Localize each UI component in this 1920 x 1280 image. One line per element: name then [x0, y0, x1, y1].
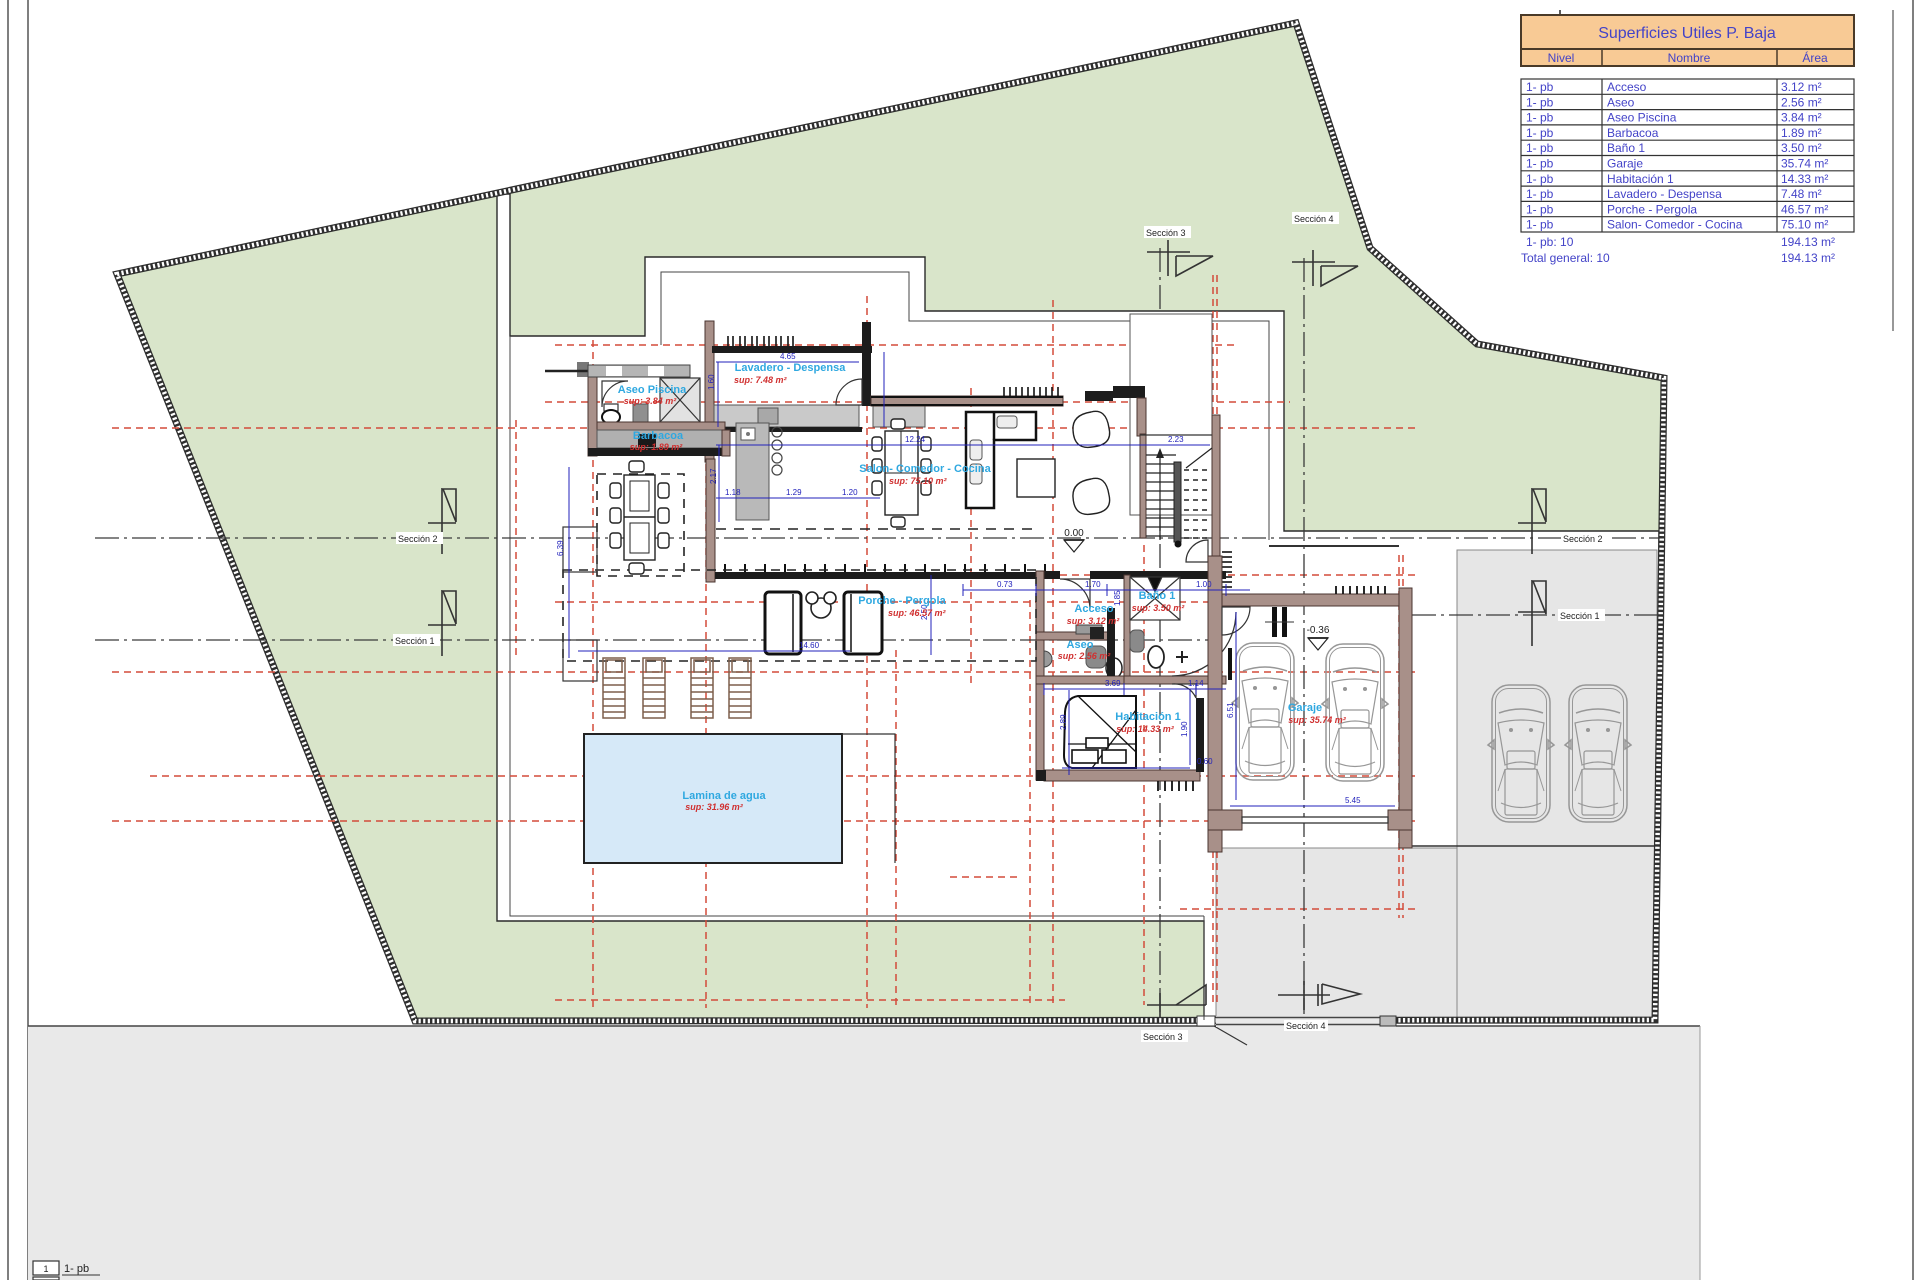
svg-text:Habitación 1: Habitación 1 — [1607, 172, 1674, 186]
svg-text:1.14: 1.14 — [1188, 679, 1204, 688]
svg-text:sup: 3.84 m²: sup: 3.84 m² — [624, 396, 678, 406]
svg-text:Superficies Utiles P. Baja: Superficies Utiles P. Baja — [1598, 25, 1776, 42]
svg-text:14.33 m²: 14.33 m² — [1781, 172, 1828, 186]
svg-text:sup: 3.50 m²: sup: 3.50 m² — [1132, 603, 1186, 613]
svg-text:Porche - Pergola: Porche - Pergola — [858, 595, 946, 607]
svg-text:7.48 m²: 7.48 m² — [1781, 187, 1822, 201]
svg-text:Aseo Piscina: Aseo Piscina — [1607, 111, 1677, 125]
svg-text:1.90: 1.90 — [1180, 721, 1189, 737]
svg-text:-0.36: -0.36 — [1307, 625, 1330, 636]
svg-text:0.73: 0.73 — [997, 580, 1013, 589]
svg-text:Sección 3: Sección 3 — [1146, 228, 1186, 238]
svg-text:sup: 46.57 m²: sup: 46.57 m² — [888, 608, 947, 618]
svg-text:sup: 3.12 m²: sup: 3.12 m² — [1067, 616, 1121, 626]
svg-text:Acceso: Acceso — [1074, 603, 1113, 615]
svg-text:sup: 7.48 m²: sup: 7.48 m² — [734, 375, 788, 385]
svg-text:Sección 1: Sección 1 — [395, 636, 435, 646]
svg-text:1- pb: 1- pb — [1526, 126, 1554, 140]
svg-text:Salon- Comedor - Cocina: Salon- Comedor - Cocina — [1607, 218, 1743, 232]
svg-text:Aseo: Aseo — [1067, 639, 1094, 651]
svg-text:sup: 35.74 m²: sup: 35.74 m² — [1288, 715, 1347, 725]
svg-text:35.74 m²: 35.74 m² — [1781, 157, 1828, 171]
svg-text:Sección 3: Sección 3 — [1143, 1032, 1183, 1042]
svg-text:3.12 m²: 3.12 m² — [1781, 80, 1822, 94]
svg-text:Sección 2: Sección 2 — [1563, 534, 1603, 544]
svg-text:Salon- Comedor - Cocina: Salon- Comedor - Cocina — [859, 463, 991, 475]
svg-text:sup: 14.33 m²: sup: 14.33 m² — [1116, 724, 1175, 734]
svg-text:Sección 2: Sección 2 — [398, 534, 438, 544]
svg-text:Porche - Pergola: Porche - Pergola — [1607, 202, 1697, 216]
svg-text:2.89: 2.89 — [1059, 714, 1068, 730]
svg-text:1.29: 1.29 — [786, 488, 802, 497]
svg-text:Aseo Piscina: Aseo Piscina — [618, 384, 687, 396]
svg-text:1- pb: 1- pb — [64, 1263, 89, 1275]
svg-text:1- pb: 1- pb — [1526, 218, 1554, 232]
svg-text:3.50 m²: 3.50 m² — [1781, 141, 1822, 155]
svg-text:3.69: 3.69 — [1105, 679, 1121, 688]
svg-text:194.13 m²: 194.13 m² — [1781, 235, 1835, 249]
svg-text:Baño 1: Baño 1 — [1607, 141, 1645, 155]
svg-text:sup: 31.96 m²: sup: 31.96 m² — [685, 802, 744, 812]
svg-text:6.39: 6.39 — [556, 540, 565, 556]
svg-text:Sección 4: Sección 4 — [1294, 214, 1334, 224]
svg-text:194.13 m²: 194.13 m² — [1781, 251, 1835, 265]
svg-text:Barbacoa: Barbacoa — [1607, 126, 1659, 140]
svg-text:Acceso: Acceso — [1607, 80, 1647, 94]
svg-text:46.57 m²: 46.57 m² — [1781, 202, 1828, 216]
svg-text:Baño 1: Baño 1 — [1139, 590, 1176, 602]
svg-text:Lavadero - Despensa: Lavadero - Despensa — [1607, 187, 1722, 201]
svg-text:2.56 m²: 2.56 m² — [1781, 95, 1822, 109]
svg-text:2.17: 2.17 — [709, 468, 718, 484]
svg-text:1- pb: 1- pb — [1526, 141, 1554, 155]
svg-text:Garaje: Garaje — [1607, 157, 1643, 171]
svg-text:2.23: 2.23 — [1168, 435, 1184, 444]
svg-text:75.10 m²: 75.10 m² — [1781, 218, 1828, 232]
svg-text:1- pb: 1- pb — [1526, 187, 1554, 201]
svg-text:Habitación 1: Habitación 1 — [1115, 711, 1180, 723]
svg-text:1- pb: 1- pb — [1526, 80, 1554, 94]
svg-text:1.89 m²: 1.89 m² — [1781, 126, 1822, 140]
svg-text:1- pb: 1- pb — [1526, 111, 1554, 125]
svg-text:3.84 m²: 3.84 m² — [1781, 111, 1822, 125]
svg-text:0.00: 0.00 — [1064, 528, 1084, 539]
svg-text:Área: Área — [1802, 50, 1828, 65]
svg-text:1: 1 — [43, 1264, 48, 1274]
svg-text:1- pb: 1- pb — [1526, 202, 1554, 216]
svg-text:1.70: 1.70 — [1085, 580, 1101, 589]
svg-text:1- pb: 1- pb — [1526, 157, 1554, 171]
svg-text:Total general: 10: Total general: 10 — [1521, 251, 1610, 265]
svg-text:14.60: 14.60 — [799, 641, 820, 650]
svg-text:1.85: 1.85 — [1113, 590, 1122, 606]
svg-text:12.24: 12.24 — [905, 435, 926, 444]
svg-text:sup: 2.56 m²: sup: 2.56 m² — [1058, 651, 1112, 661]
svg-text:1- pb: 1- pb — [1526, 172, 1554, 186]
svg-text:Aseo: Aseo — [1607, 95, 1635, 109]
svg-text:1- pb: 1- pb — [1526, 95, 1554, 109]
svg-text:Garaje: Garaje — [1288, 702, 1322, 714]
svg-text:6.51: 6.51 — [1226, 702, 1235, 718]
svg-text:1- pb: 10: 1- pb: 10 — [1526, 235, 1574, 249]
svg-text:sup: 75.10 m²: sup: 75.10 m² — [889, 476, 948, 486]
svg-text:Nombre: Nombre — [1668, 51, 1711, 65]
svg-text:Sección 4: Sección 4 — [1286, 1021, 1326, 1031]
svg-text:Lavadero - Despensa: Lavadero - Despensa — [735, 362, 847, 374]
svg-text:Lamina de agua: Lamina de agua — [682, 790, 766, 802]
svg-text:Barbacoa: Barbacoa — [633, 430, 684, 442]
svg-text:0.60: 0.60 — [1197, 757, 1213, 766]
svg-text:1.20: 1.20 — [842, 488, 858, 497]
svg-text:5.45: 5.45 — [1345, 796, 1361, 805]
svg-text:1.60: 1.60 — [707, 374, 716, 390]
svg-text:1.18: 1.18 — [725, 488, 741, 497]
svg-text:sup: 1.89 m²: sup: 1.89 m² — [630, 442, 684, 452]
svg-text:Nivel: Nivel — [1548, 51, 1575, 65]
svg-text:4.65: 4.65 — [780, 352, 796, 361]
svg-text:1.00: 1.00 — [1196, 580, 1212, 589]
svg-text:Sección 1: Sección 1 — [1560, 611, 1600, 621]
